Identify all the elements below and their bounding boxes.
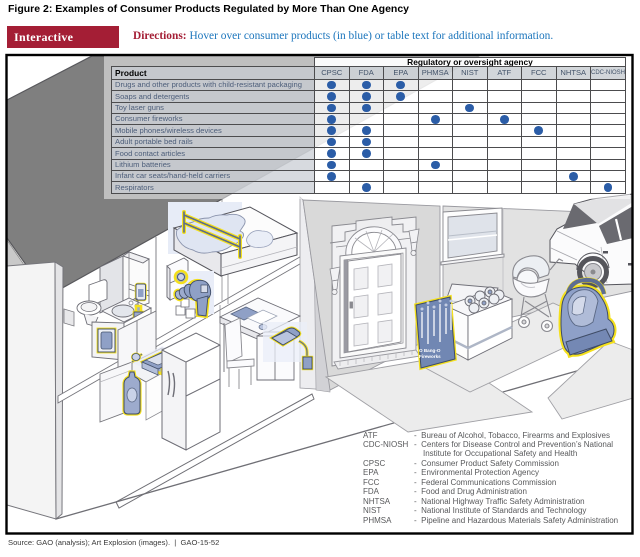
svg-text:Fireworks: Fireworks <box>419 354 441 359</box>
svg-text:O Bang-O: O Bang-O <box>419 348 441 353</box>
